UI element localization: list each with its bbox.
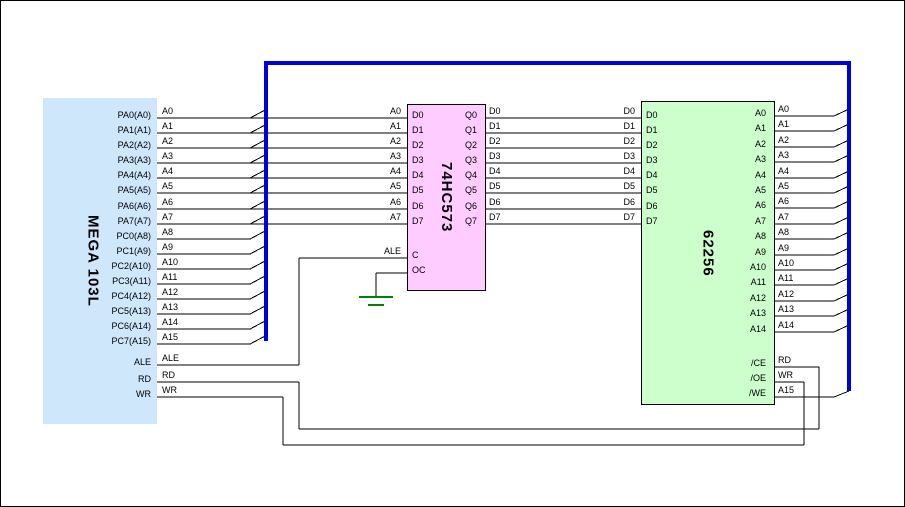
wire-segment [834, 186, 849, 193]
mcu-wire-label: A1 [162, 121, 173, 131]
mcu-pin-label: PC5(A13) [111, 306, 151, 316]
data-bus-wire-label: D1 [489, 121, 501, 131]
mcu-pin-label: PA6(A6) [118, 201, 151, 211]
data-bus-wire-label: D2 [489, 136, 501, 146]
sram-pin-label: D2 [646, 140, 658, 150]
latch-pin-label: D5 [412, 185, 424, 195]
data-bus-wire-label: D0 [623, 106, 635, 116]
mcu-wire-label: RD [162, 370, 175, 380]
latch-pin-label: OC [412, 265, 426, 275]
sram-pin-label: A8 [755, 231, 766, 241]
wire-segment [834, 294, 849, 301]
latch-input-wire-label: A3 [390, 151, 401, 161]
wire-segment [834, 309, 849, 316]
mcu-pin-label: PA5(A5) [118, 185, 151, 195]
sram-pin-label: A13 [750, 308, 766, 318]
latch-input-wire-label: A2 [390, 136, 401, 146]
latch-pin-label: D2 [412, 140, 424, 150]
mcu-pin-label: PC3(A11) [112, 276, 151, 286]
mcu-wire-label: A4 [162, 166, 173, 176]
data-bus-wire-label: D7 [489, 212, 501, 222]
mcu-pin-label: PA1(A1) [118, 125, 151, 135]
chip-62256-name: 62256 [700, 230, 717, 277]
wire-segment [834, 217, 849, 224]
sram-pin-label: A10 [750, 262, 766, 272]
sram-pin-label: D0 [646, 110, 658, 120]
latch-input-wire-label: A7 [390, 212, 401, 222]
latch-input-wire-label: A0 [390, 106, 401, 116]
mcu-wire-label: A11 [162, 272, 177, 282]
latch-pin-label: Q0 [465, 110, 477, 120]
mcu-pin-label: RD [138, 374, 151, 384]
wire-segment [834, 140, 849, 147]
sram-address-wire-label: A5 [778, 181, 789, 191]
sram-address-wire-label: A2 [778, 135, 789, 145]
data-bus-wire-label: D5 [623, 181, 635, 191]
sram-pin-label: A6 [755, 200, 766, 210]
sram-control-wire-label: RD [778, 355, 791, 365]
sram-pin-label: A1 [755, 123, 766, 133]
wire-segment [834, 391, 849, 397]
mcu-pin-label: PC0(A8) [116, 231, 151, 241]
mcu-pin-label: PA2(A2) [118, 140, 151, 150]
data-bus-wire-label: D3 [623, 151, 635, 161]
sram-pin-label: A7 [755, 216, 766, 226]
sram-address-wire-label: A12 [778, 289, 794, 299]
wire-segment [834, 155, 849, 162]
mcu-pin-label: PA7(A7) [118, 216, 151, 226]
sram-pin-label: D7 [646, 216, 658, 226]
latch-pin-label: Q6 [465, 201, 477, 211]
data-bus-wire-label: D0 [489, 106, 501, 116]
latch-pin-label: Q4 [465, 170, 477, 180]
mcu-wire-label: ALE [162, 353, 179, 363]
mcu-wire-label: A10 [162, 257, 178, 267]
sram-address-wire-label: A7 [778, 212, 789, 222]
sram-pin-label: A4 [755, 170, 766, 180]
sram-address-wire-label: A13 [778, 304, 794, 314]
latch-pin-label: Q3 [465, 155, 477, 165]
mcu-wire-label: A6 [162, 197, 173, 207]
mcu-pin-label: PC1(A9) [116, 246, 151, 256]
sram-pin-label: D4 [646, 170, 658, 180]
sram-pin-label: D3 [646, 155, 658, 165]
data-bus-wire-label: D5 [489, 181, 501, 191]
sram-address-wire-label: A9 [778, 243, 789, 253]
sram-pin-label: A11 [751, 277, 766, 287]
mcu-wire-label: A2 [162, 136, 173, 146]
latch-clock-wire-label: ALE [384, 246, 401, 256]
mcu-wire-label: A13 [162, 302, 178, 312]
schematic-canvas: MEGA 103L 74HC573 62256 PA0(A0)PA1(A1)PA… [0, 0, 905, 507]
sram-pin-label: A5 [755, 185, 766, 195]
wire-segment [834, 325, 849, 332]
mcu-wire-label: A15 [162, 332, 178, 342]
data-bus-wire-label: D2 [623, 136, 635, 146]
sram-pin-label: A14 [750, 324, 766, 334]
mcu-wire-label: A14 [162, 317, 178, 327]
sram-pin-label: A3 [755, 154, 766, 164]
sram-address-wire-label: A8 [778, 227, 789, 237]
mcu-wire-label: A5 [162, 181, 173, 191]
sram-pin-label: /CE [751, 358, 766, 368]
mcu-wire-label: WR [162, 385, 177, 395]
data-bus-wire-label: D6 [623, 197, 635, 207]
mcu-pin-label: PA0(A0) [118, 110, 151, 120]
wire-segment [834, 263, 849, 270]
sram-pin-label: A2 [755, 139, 766, 149]
sram-address-wire-label: A6 [778, 196, 789, 206]
sram-address-wire-label: A10 [778, 258, 794, 268]
latch-pin-label: Q2 [465, 140, 477, 150]
mcu-wire-label: A7 [162, 212, 173, 222]
sram-control-wire-label: A15 [778, 385, 794, 395]
sram-pin-label: D5 [646, 185, 658, 195]
latch-pin-label: D0 [412, 110, 424, 120]
sram-address-wire-label: A14 [778, 320, 794, 330]
sram-address-wire-label: A11 [778, 273, 793, 283]
wire-segment [834, 171, 849, 178]
latch-pin-label: D7 [412, 216, 424, 226]
data-bus-wire-label: D6 [489, 197, 501, 207]
sram-pin-label: A9 [755, 247, 766, 257]
mcu-wire-label: A0 [162, 106, 173, 116]
sram-pin-label: D1 [646, 125, 658, 135]
sram-address-wire-label: A4 [778, 166, 789, 176]
latch-pin-label: C [412, 250, 419, 260]
latch-pin-label: D1 [412, 125, 424, 135]
latch-pin-label: Q5 [465, 185, 477, 195]
wire-segment [834, 201, 849, 208]
mcu-pin-label: PC2(A10) [111, 261, 151, 271]
chip-mega103l-name: MEGA 103L [85, 215, 102, 307]
sram-pin-label: /WE [749, 388, 766, 398]
wire-segment [834, 232, 849, 239]
wire-segment [834, 278, 849, 285]
data-bus-wire-label: D4 [489, 166, 501, 176]
mcu-pin-label: PC4(A12) [111, 291, 151, 301]
chip-74hc573-name: 74HC573 [438, 162, 455, 232]
sram-pin-label: /OE [750, 373, 766, 383]
mcu-wire-label: A8 [162, 227, 173, 237]
sram-pin-label: A12 [750, 293, 766, 303]
sram-pin-label: A0 [755, 108, 766, 118]
sram-address-wire-label: A1 [778, 119, 789, 129]
latch-pin-label: D3 [412, 155, 424, 165]
wire-segment [834, 124, 849, 131]
mcu-pin-label: WR [136, 389, 151, 399]
data-bus-wire-label: D4 [623, 166, 635, 176]
latch-pin-label: Q1 [465, 125, 477, 135]
mcu-wire-label: A3 [162, 151, 173, 161]
mcu-pin-label: PC7(A15) [111, 336, 151, 346]
latch-input-wire-label: A6 [390, 197, 401, 207]
data-bus-wire-label: D3 [489, 151, 501, 161]
mcu-pin-label: PA3(A3) [118, 155, 151, 165]
wire-segment [834, 109, 849, 116]
sram-control-wire-label: WR [778, 370, 793, 380]
latch-pin-label: D6 [412, 201, 424, 211]
mcu-pin-label: PC6(A14) [111, 321, 151, 331]
mcu-wire-label: A12 [162, 287, 178, 297]
latch-input-wire-label: A4 [390, 166, 401, 176]
latch-pin-label: Q7 [465, 216, 477, 226]
latch-input-wire-label: A1 [390, 121, 401, 131]
data-bus-wire-label: D1 [623, 121, 635, 131]
wire-segment [834, 248, 849, 255]
sram-address-wire-label: A0 [778, 104, 789, 114]
mcu-pin-label: ALE [134, 357, 151, 367]
sram-address-wire-label: A3 [778, 150, 789, 160]
latch-pin-label: D4 [412, 170, 424, 180]
mcu-wire-label: A9 [162, 242, 173, 252]
sram-pin-label: D6 [646, 201, 658, 211]
latch-input-wire-label: A5 [390, 181, 401, 191]
data-bus-wire-label: D7 [623, 212, 635, 222]
mcu-pin-label: PA4(A4) [118, 170, 151, 180]
